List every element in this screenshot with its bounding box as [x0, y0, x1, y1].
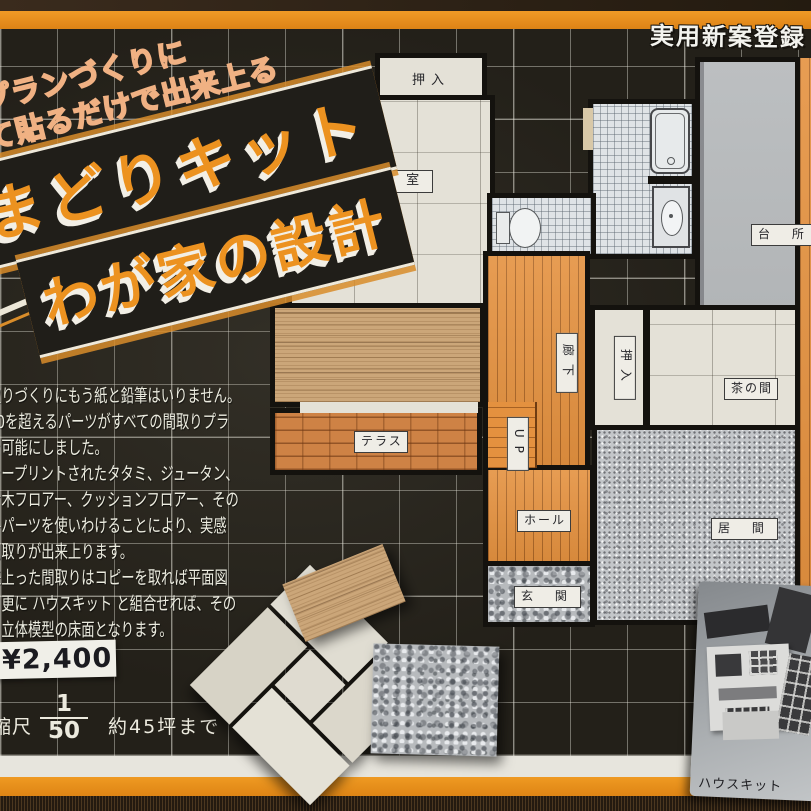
- bathtub-drain: [667, 157, 675, 165]
- price-text: ¥2,400: [0, 643, 113, 677]
- model-window-grid: [749, 650, 778, 675]
- bathtub: [650, 108, 690, 174]
- description-line: ラープリントされたタタミ、ジュータン、: [0, 462, 240, 488]
- washbasin: [652, 186, 690, 248]
- scale-coverage: 約45坪まで: [108, 712, 220, 739]
- stone-sample-piece: [371, 643, 500, 756]
- scale-denominator: 50: [40, 717, 88, 744]
- living-room-label: 居 間: [711, 518, 778, 540]
- scale-numerator: 1: [56, 692, 72, 717]
- photo-caption: ハウスキット: [698, 772, 811, 797]
- stairs-label: UP: [507, 417, 529, 471]
- washbasin-bowl: [661, 200, 683, 236]
- room-tea: [650, 310, 795, 426]
- hall-label: ホール: [517, 510, 571, 532]
- price-band: ¥2,400: [0, 640, 116, 680]
- corridor-label: 廊下: [556, 333, 578, 393]
- description-line: 来上った間取りはコピーを取れば平面図: [0, 566, 240, 592]
- bath-partition-wall: [648, 176, 692, 184]
- terrace-label: テラス: [354, 431, 408, 453]
- box-right-edge: [800, 58, 811, 618]
- description-line: 間取りが出来上ります。: [0, 540, 240, 566]
- tea-room-label: 茶の間: [724, 378, 778, 400]
- room-kitchen: [700, 62, 795, 308]
- closet-side-label: 押入: [614, 336, 636, 400]
- house-kit-photo: ハウスキット: [690, 581, 811, 801]
- description-line: を可能にしました。: [0, 436, 240, 462]
- description-line: 50を超えるパーツがすべての間取りプラ: [0, 410, 240, 436]
- model-base: [722, 711, 779, 740]
- product-box-photo: { "registration_badge": "実用新案登録", "banne…: [0, 0, 811, 811]
- model-roof-panel: [704, 605, 771, 639]
- description-line: 、更に ハウスキット と組合せれば、その: [0, 592, 240, 618]
- description-line: せ木フロアー、クッションフロアー、その: [0, 488, 240, 514]
- box-bottom-white-band: [0, 756, 811, 777]
- model-partition: [718, 686, 776, 701]
- description-line: 取りづくりにもう紙と鉛筆はいりません。: [0, 384, 240, 410]
- washbasin-drain: [669, 214, 673, 218]
- table-edge-fringe: [0, 796, 811, 811]
- description-line: 、立体模型の床面となります。: [0, 618, 240, 644]
- scale-label: 縮尺: [0, 712, 32, 739]
- registration-badge: 実用新案登録: [650, 16, 806, 53]
- kitchen-label: 台 所: [751, 224, 811, 246]
- scale-fraction: 1 50: [42, 692, 86, 744]
- model-window: [715, 654, 742, 677]
- description-line: 各パーツを使いわけることにより、実感: [0, 514, 240, 540]
- entrance-label: 玄 関: [514, 586, 581, 608]
- scale-row: 縮尺 1 50 約45坪まで: [0, 692, 220, 744]
